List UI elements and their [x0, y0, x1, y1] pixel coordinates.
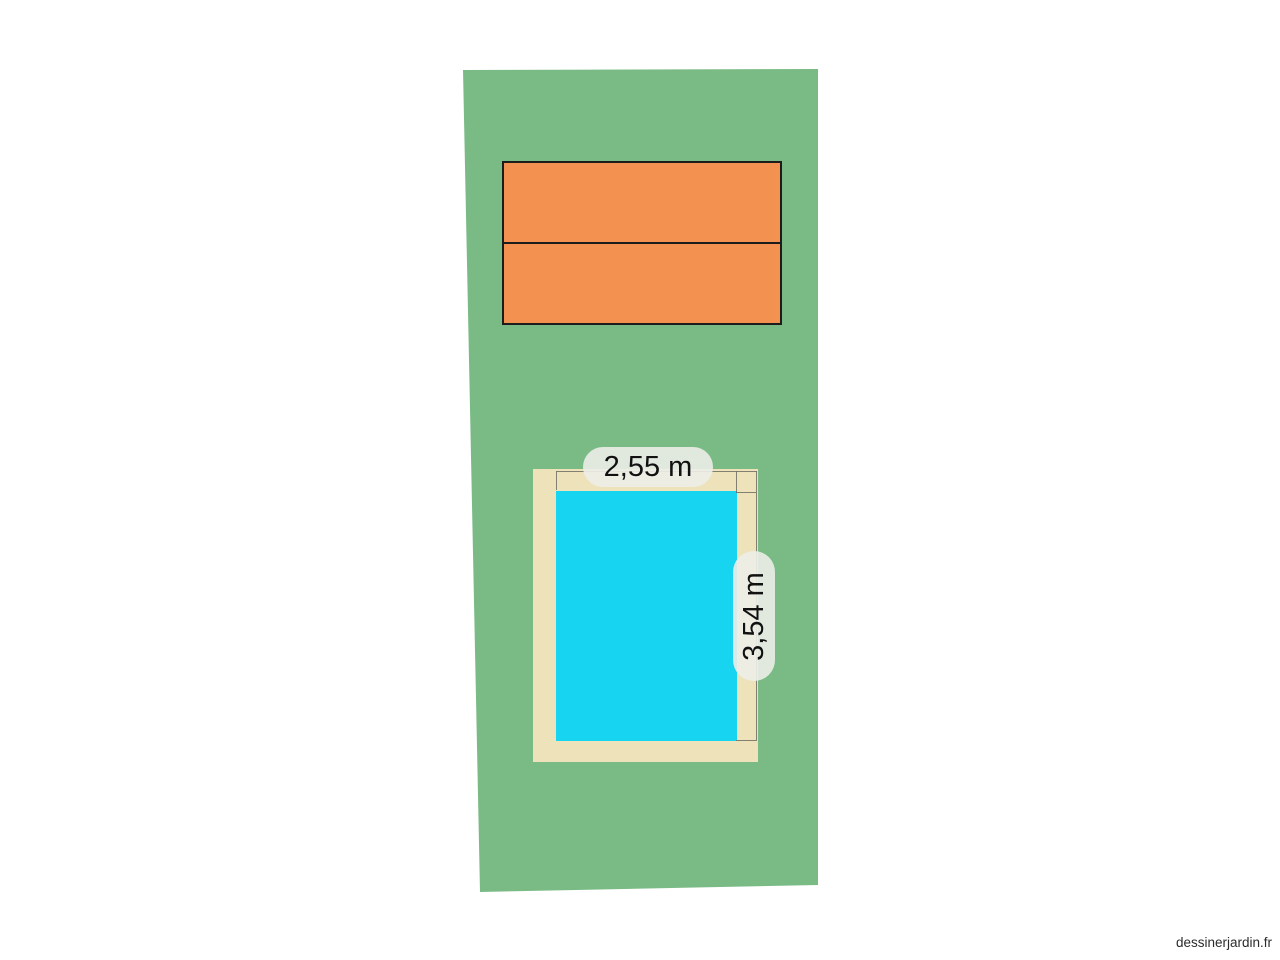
pool-water[interactable]	[556, 491, 737, 741]
building[interactable]	[502, 161, 782, 325]
pool-height-value: 3,54 m	[740, 572, 769, 661]
dimension-tick-right-top	[736, 492, 756, 493]
design-canvas[interactable]: 2,55 m 3,54 m dessinerjardin.fr	[0, 0, 1280, 960]
building-section-upper[interactable]	[504, 163, 780, 242]
pool-height-label: 3,54 m	[733, 551, 775, 681]
pool-width-value: 2,55 m	[604, 453, 693, 482]
dimension-tick-right-bottom	[736, 740, 756, 741]
building-section-lower[interactable]	[504, 244, 780, 323]
dimension-tick-top-left	[556, 471, 557, 490]
pool-width-label: 2,55 m	[583, 447, 713, 487]
watermark: dessinerjardin.fr	[1176, 935, 1272, 950]
dimension-tick-top-right	[736, 471, 737, 493]
